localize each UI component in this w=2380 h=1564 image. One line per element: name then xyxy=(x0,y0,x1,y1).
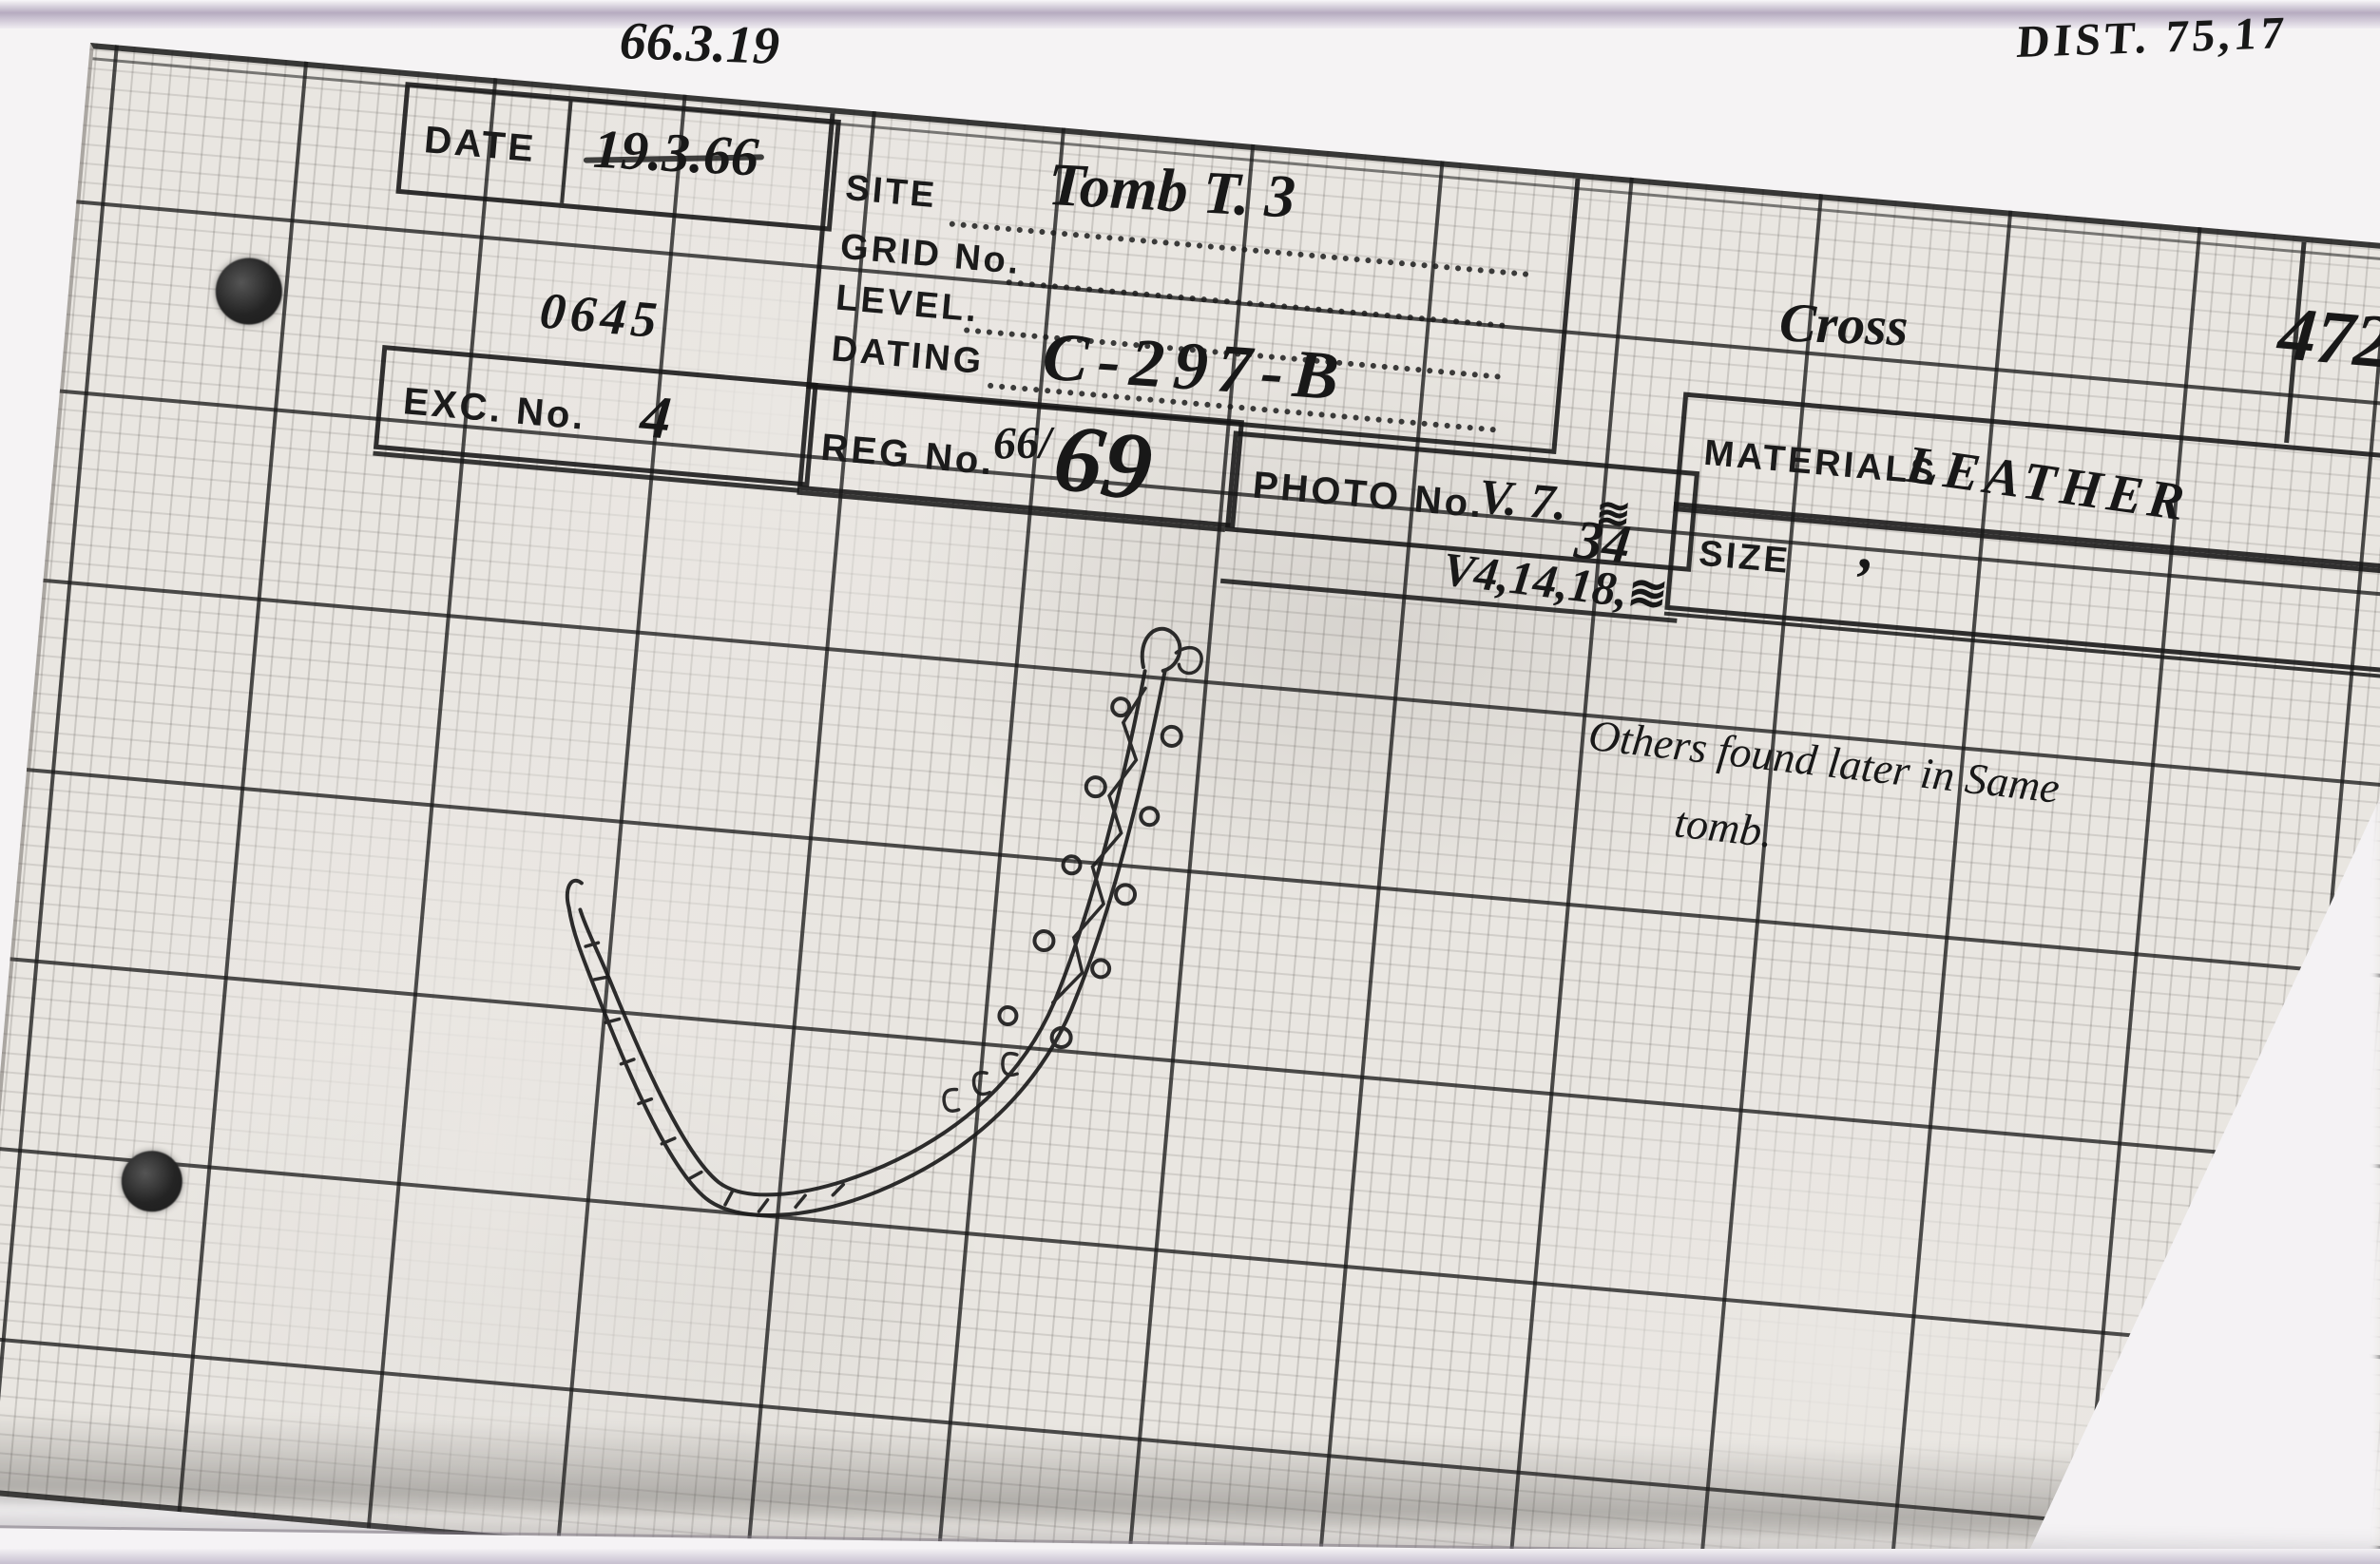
date-value: 19.3.66 xyxy=(592,122,760,185)
punch-hole-top xyxy=(213,256,285,328)
top-right-annotation: DIST. 75,17 xyxy=(2015,10,2289,66)
date-field-box: DATE 19.3.66 xyxy=(395,82,841,232)
reg-no-label: REG No. xyxy=(819,427,996,485)
date-label: DATE xyxy=(422,119,537,171)
photo-no-label: PHOTO No. xyxy=(1251,464,1486,526)
reg-no-value: 69 xyxy=(1048,409,1158,518)
cell-note-0645: 0645 xyxy=(538,284,663,346)
reg-no-value-prefix: 66/ xyxy=(993,421,1052,467)
punch-hole-bottom xyxy=(119,1149,184,1214)
size-stray-mark: , xyxy=(1858,517,1879,579)
sketch-top-curl xyxy=(1141,627,1181,672)
scanner-edge-bottom xyxy=(0,1549,2380,1564)
site-value: Tomb T. 3 xyxy=(1046,154,1296,228)
cell-note-cross: Cross xyxy=(1778,296,1909,355)
note-line-1: Others found later in Same xyxy=(1586,714,2062,811)
exc-no-label: EXC. No. xyxy=(401,380,587,439)
site-dotted-line xyxy=(950,221,1529,277)
dating-label: DATING xyxy=(830,329,986,383)
materials-value: LEATHER xyxy=(1903,438,2193,530)
scanned-record-card-page: DATE 19.3.66 SITE Tomb T. 3 GRID No. LEV… xyxy=(0,0,2380,1564)
exc-no-value: 4 xyxy=(638,386,673,449)
date-box-divider xyxy=(560,101,572,203)
photo-no-value: V. 7. xyxy=(1477,472,1569,529)
sketch-outer-edge xyxy=(544,621,1165,1247)
exc-no-field-box: EXC. No. 4 xyxy=(374,345,818,487)
sketch-tail-hook xyxy=(566,880,582,908)
excavation-record-card: DATE 19.3.66 SITE Tomb T. 3 GRID No. LEV… xyxy=(0,43,2380,1564)
leather-strap-sketch xyxy=(526,568,1207,1267)
site-label: SITE xyxy=(844,168,939,217)
grid-no-label: GRID No. xyxy=(838,227,1023,283)
dating-value: C-297-B xyxy=(1041,321,1351,410)
sketch-inner-edge xyxy=(557,624,1145,1225)
note-line-2: tomb. xyxy=(1672,800,1775,854)
top-left-annotation: 66.3.19 xyxy=(619,14,780,73)
level-label: LEVEL. xyxy=(835,277,981,331)
size-label: SIZE xyxy=(1698,534,1793,582)
